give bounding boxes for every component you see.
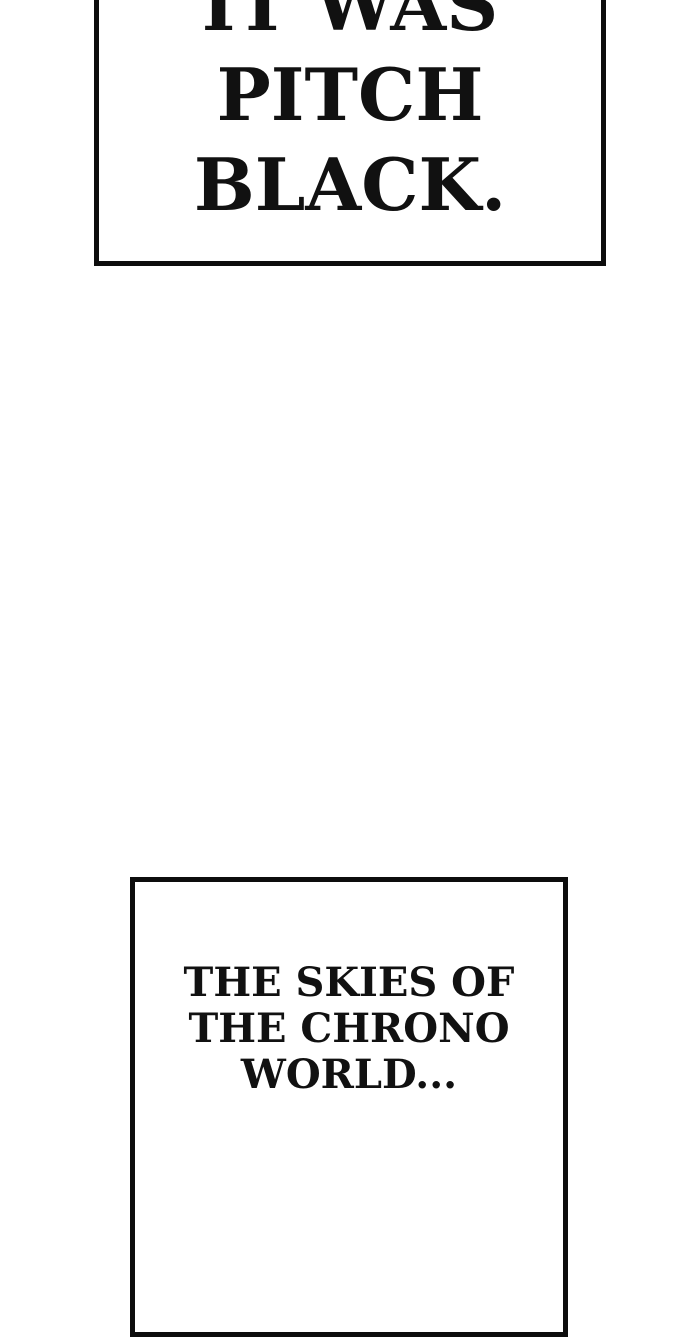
caption-box-bottom: THE SKIES OF THE CHRONO WORLD...: [130, 877, 568, 1337]
caption-bottom-line-1: THE SKIES OF: [135, 960, 563, 1006]
caption-bottom-line-3: WORLD...: [135, 1052, 563, 1098]
caption-box-top: IT WAS PITCH BLACK.: [94, 0, 606, 266]
caption-top-line-1: IT WAS: [99, 0, 601, 50]
caption-top-line-2: PITCH: [99, 50, 601, 140]
caption-top-line-3: BLACK.: [99, 140, 601, 230]
caption-bottom-line-2: THE CHRONO: [135, 1006, 563, 1052]
